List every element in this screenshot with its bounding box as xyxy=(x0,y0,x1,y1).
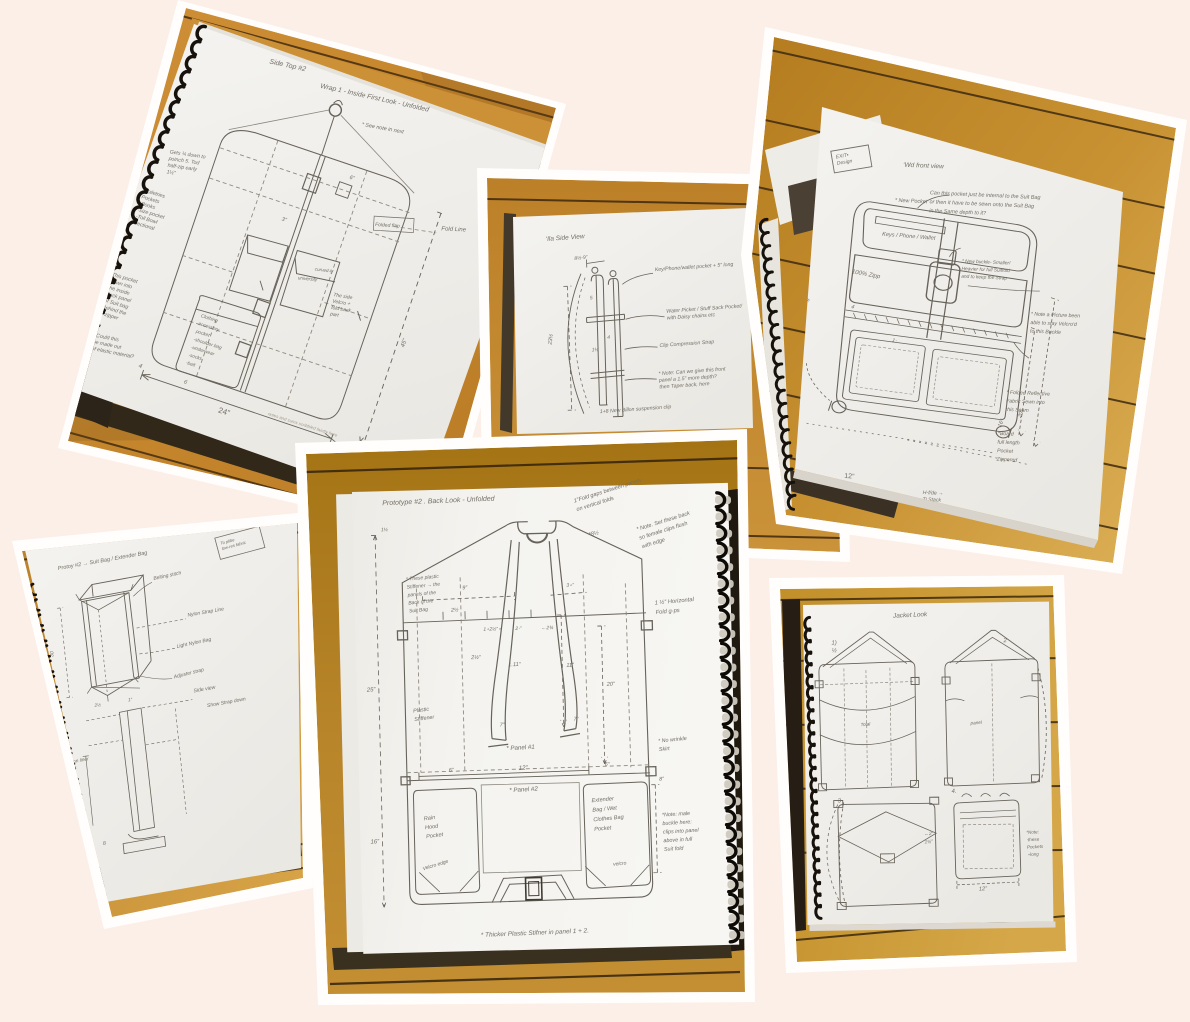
svg-text:1½: 1½ xyxy=(592,346,600,353)
svg-text:7”: 7” xyxy=(500,722,505,728)
svg-text:16”: 16” xyxy=(370,839,380,846)
svg-text:8½-9”: 8½-9” xyxy=(574,254,588,262)
svg-text:6”: 6” xyxy=(605,762,610,768)
svg-text:⋅these: ⋅these xyxy=(1026,837,1039,843)
svg-text:Fold Line: Fold Line xyxy=(441,226,467,233)
svg-text:⋆long: ⋆long xyxy=(1027,851,1039,857)
svg-text:11”: 11” xyxy=(566,663,575,669)
svg-text:6”: 6” xyxy=(449,768,454,774)
svg-text:Suit fold: Suit fold xyxy=(664,846,685,853)
svg-text:B: B xyxy=(103,840,107,845)
svg-text:2½: 2½ xyxy=(93,701,101,708)
svg-text:velcro: velcro xyxy=(613,860,627,867)
svg-text:25”: 25” xyxy=(366,687,377,694)
svg-text:9”: 9” xyxy=(462,585,467,591)
svg-text:12”: 12” xyxy=(519,764,529,772)
svg-text:12”: 12” xyxy=(979,886,989,892)
svg-text:2½: 2½ xyxy=(450,606,459,613)
svg-text:4: 4 xyxy=(607,335,610,341)
svg-text:1.11”: 1.11” xyxy=(508,662,522,668)
svg-text:1): 1) xyxy=(831,640,837,646)
svg-text:←2¾: ←2¾ xyxy=(541,625,553,631)
svg-text:8”: 8” xyxy=(659,776,664,782)
svg-text:1½: 1½ xyxy=(381,526,389,533)
svg-text:5: 5 xyxy=(590,295,593,301)
svg-text:4.: 4. xyxy=(951,789,956,795)
svg-text:Total: Total xyxy=(860,721,871,727)
svg-text:½: ½ xyxy=(832,647,837,654)
svg-text:Pocket: Pocket xyxy=(997,448,1014,455)
svg-text:*Note:: *Note: xyxy=(1026,829,1040,835)
svg-text:Skirt: Skirt xyxy=(659,746,671,753)
svg-text:Pockets: Pockets xyxy=(1027,844,1044,850)
svg-text:Zippered: Zippered xyxy=(996,457,1019,464)
svg-text:this Seam: this Seam xyxy=(1006,407,1030,414)
svg-text:3⋆”: 3⋆” xyxy=(566,583,574,589)
svg-text:12”: 12” xyxy=(844,473,855,481)
svg-text:H-f/de →: H-f/de → xyxy=(923,490,944,497)
svg-text:full length: full length xyxy=(997,440,1020,447)
svg-text:1⋆2½”⋆: 1⋆2½”⋆ xyxy=(483,625,501,632)
svg-text:20”: 20” xyxy=(606,682,616,688)
svg-text:1½”: 1½” xyxy=(166,168,176,176)
svg-text:←2”: ←2” xyxy=(924,831,934,837)
svg-text:7”: 7” xyxy=(574,717,579,723)
svg-text:2⋅”: 2⋅” xyxy=(514,626,522,632)
svg-text:2½”: 2½” xyxy=(470,654,482,661)
svg-text:*Board: *Board xyxy=(998,431,1015,438)
